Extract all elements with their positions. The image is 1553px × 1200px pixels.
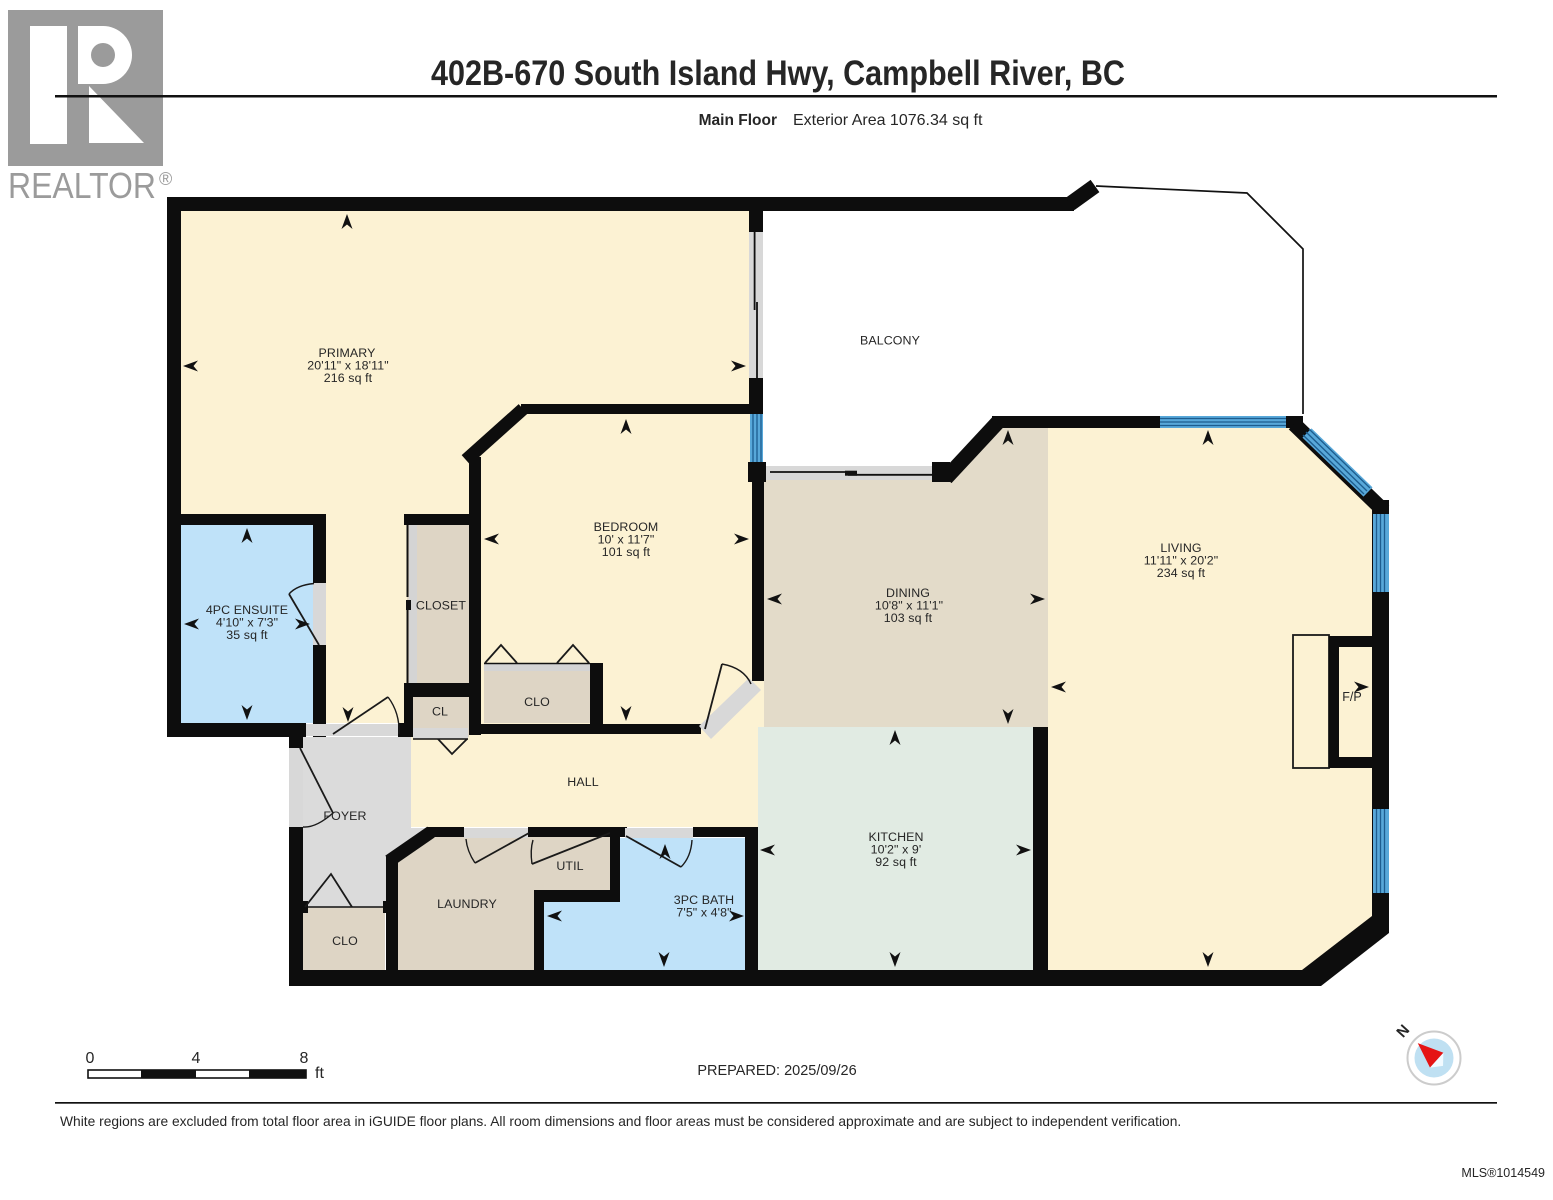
svg-text:UTIL: UTIL — [556, 859, 583, 873]
svg-text:LAUNDRY: LAUNDRY — [437, 897, 497, 911]
svg-text:8: 8 — [300, 1050, 309, 1067]
svg-text:REALTOR: REALTOR — [8, 165, 156, 206]
svg-text:402B-670 South Island Hwy, Cam: 402B-670 South Island Hwy, Campbell Rive… — [431, 54, 1125, 93]
svg-text:PREPARED: 2025/09/26: PREPARED: 2025/09/26 — [697, 1063, 856, 1079]
svg-text:Main Floor: Main Floor — [699, 112, 777, 129]
svg-text:35 sq ft: 35 sq ft — [226, 628, 268, 642]
svg-text:White regions are excluded fro: White regions are excluded from total fl… — [60, 1114, 1181, 1129]
svg-text:0: 0 — [86, 1050, 95, 1067]
svg-text:®: ® — [159, 169, 172, 189]
svg-text:101 sq ft: 101 sq ft — [602, 545, 651, 559]
svg-text:FOYER: FOYER — [323, 809, 366, 823]
svg-text:CL: CL — [432, 705, 448, 719]
svg-text:F/P: F/P — [1342, 690, 1361, 704]
svg-text:Exterior Area 1076.34 sq ft: Exterior Area 1076.34 sq ft — [793, 112, 983, 129]
svg-text:HALL: HALL — [567, 775, 598, 789]
svg-text:234 sq ft: 234 sq ft — [1157, 566, 1206, 580]
svg-text:N: N — [1393, 1022, 1413, 1041]
svg-text:ft: ft — [315, 1065, 324, 1082]
svg-text:BALCONY: BALCONY — [860, 334, 920, 348]
svg-text:7'5" x 4'8": 7'5" x 4'8" — [676, 906, 731, 920]
svg-text:103 sq ft: 103 sq ft — [884, 611, 933, 625]
svg-text:CLO: CLO — [524, 695, 550, 709]
svg-text:92 sq ft: 92 sq ft — [875, 855, 917, 869]
svg-text:4: 4 — [192, 1050, 201, 1067]
svg-text:MLS®1014549: MLS®1014549 — [1461, 1166, 1545, 1180]
svg-text:216 sq ft: 216 sq ft — [324, 371, 373, 385]
svg-text:CLO: CLO — [332, 934, 358, 948]
svg-text:CLOSET: CLOSET — [416, 599, 467, 613]
